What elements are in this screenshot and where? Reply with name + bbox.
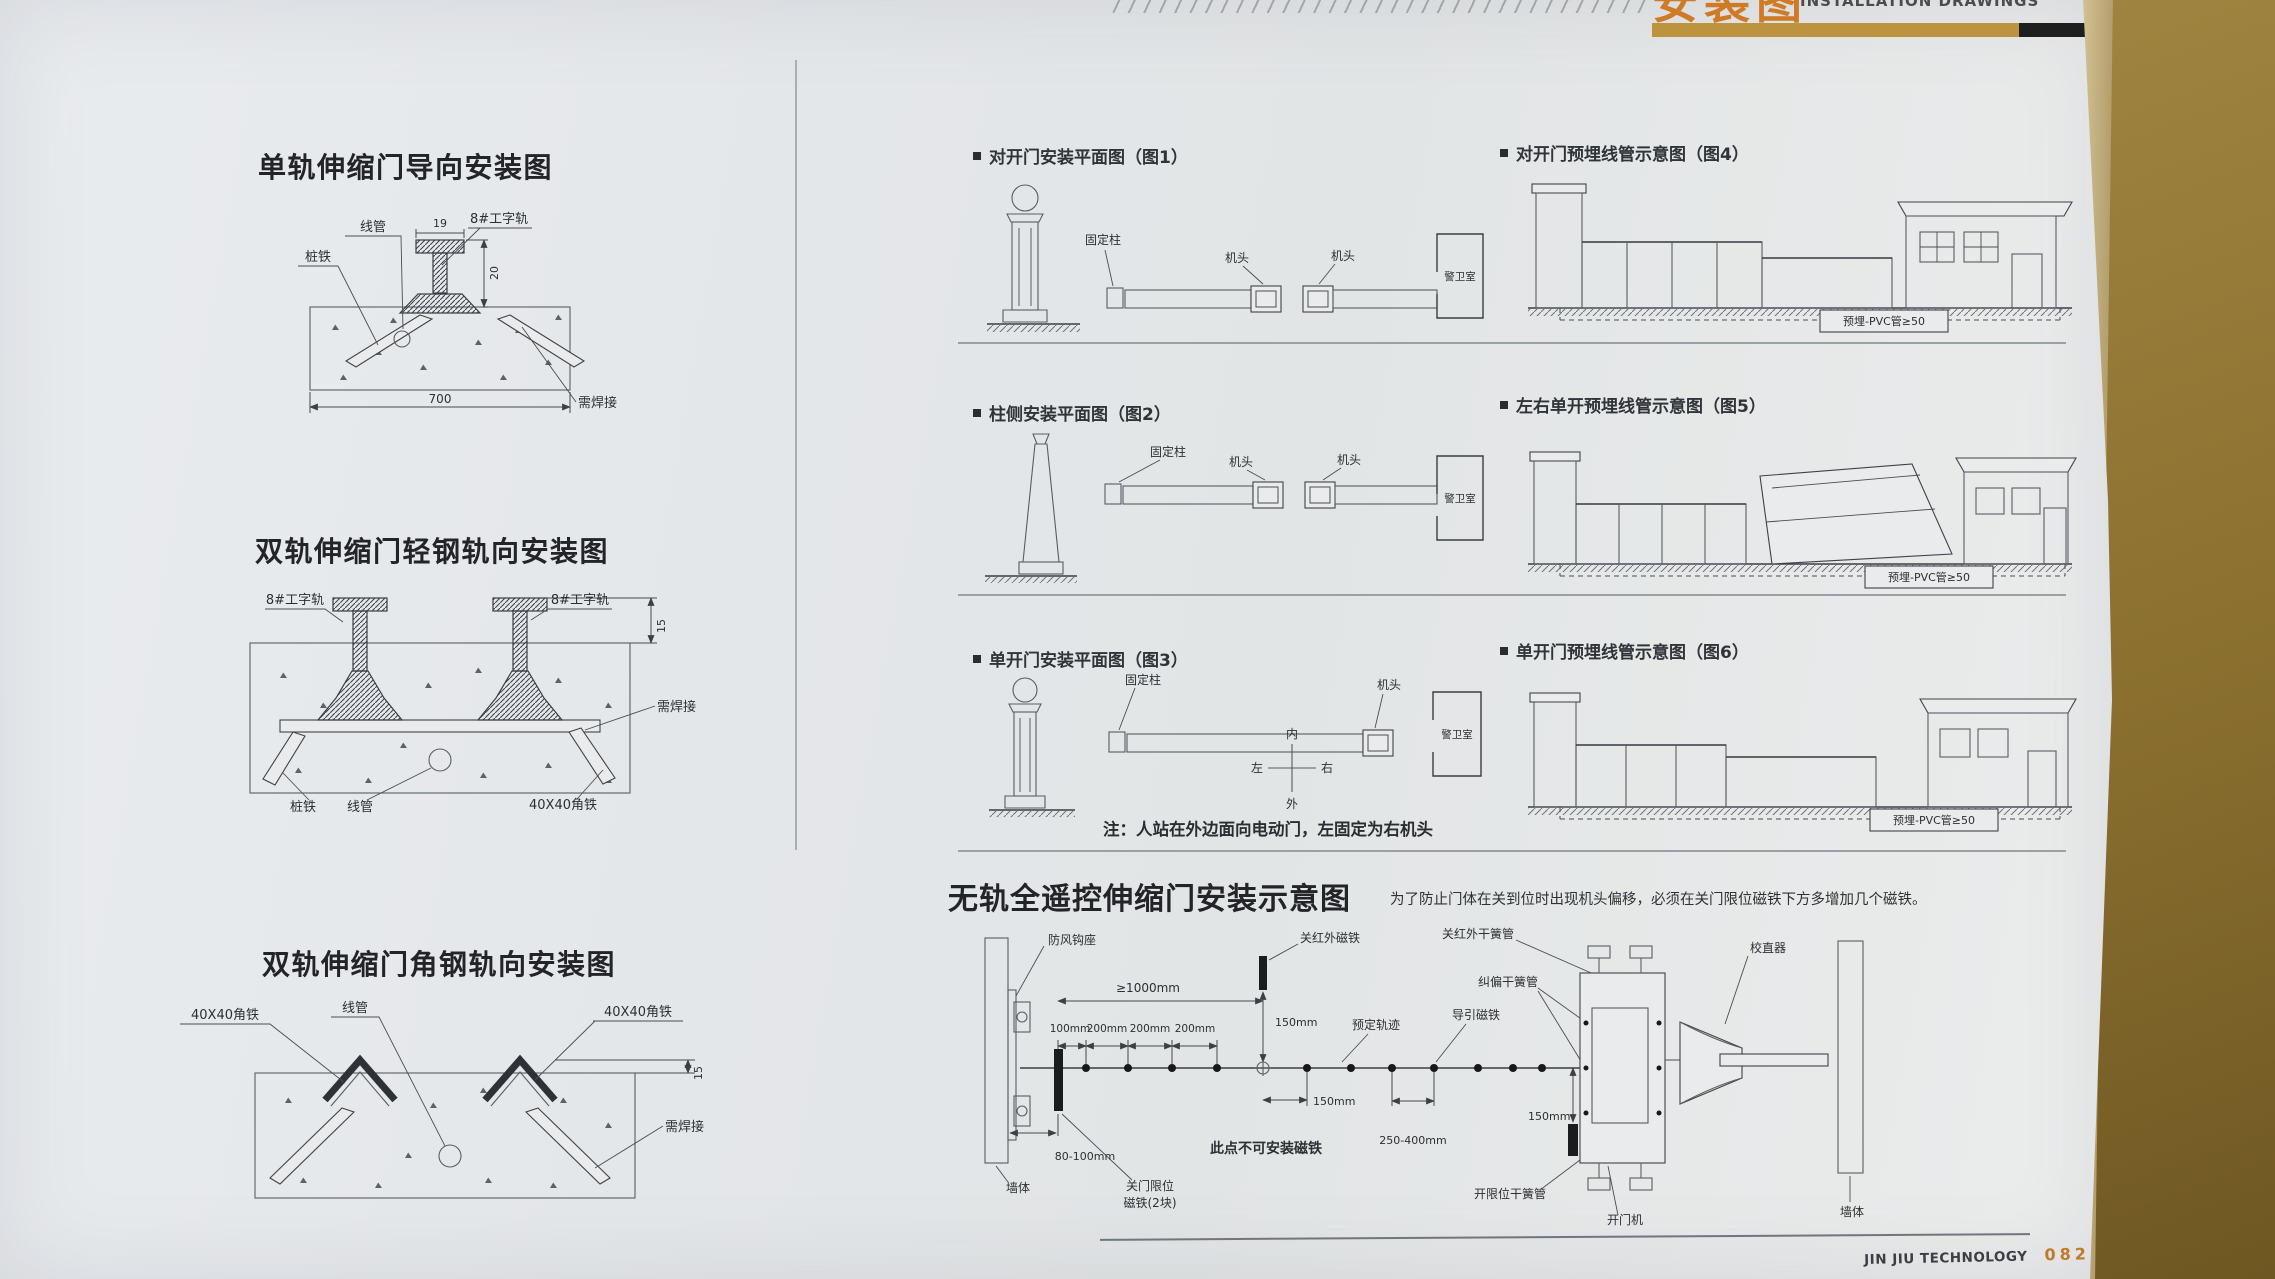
bullet-square bbox=[1500, 149, 1508, 157]
gate-section-left bbox=[1123, 486, 1253, 504]
label-planned-track: 预定轨迹 bbox=[1352, 1017, 1400, 1032]
lattice-fence bbox=[1576, 504, 1746, 564]
fixed-post bbox=[1107, 288, 1123, 308]
brick-pillar bbox=[1530, 452, 1580, 564]
label-wall-right: 墙体 bbox=[1840, 1205, 1864, 1219]
dim-100mm: 100mm bbox=[1050, 1023, 1091, 1035]
label-head-right: 机头 bbox=[1337, 453, 1361, 467]
dim-200mm-1: 200mm bbox=[1087, 1023, 1128, 1035]
dim-20-text: 20 bbox=[488, 266, 501, 280]
dim-1000mm: ≥1000mm bbox=[1116, 981, 1180, 995]
diagram2-title: 双轨伸缩门轻钢轨向安装图 bbox=[255, 530, 609, 570]
label-angle-left: 40X40角铁 bbox=[191, 1008, 259, 1023]
conduit-circle bbox=[439, 1145, 461, 1167]
gate-section-right bbox=[1335, 486, 1437, 504]
figure2-pillar-side-plan: 警卫室 固定柱 机头 机头 bbox=[985, 428, 1485, 588]
diagram3-title: 双轨伸缩门角钢轨向安装图 bbox=[262, 943, 616, 983]
machine-head bbox=[1363, 730, 1393, 756]
machine-head-left bbox=[1251, 286, 1281, 312]
gate-section bbox=[1127, 734, 1363, 752]
label-wall-left: 墙体 bbox=[1006, 1181, 1030, 1195]
label-door-opener: 开门机 bbox=[1607, 1212, 1643, 1227]
label-no-magnet-here: 此点不可安装磁铁 bbox=[1210, 1140, 1322, 1157]
label-close-ir-reed: 关红外干簧管 bbox=[1442, 926, 1514, 941]
gate-end-rod bbox=[1720, 1054, 1828, 1066]
bullet-square bbox=[973, 409, 981, 417]
trackless-section-title: 无轨全遥控伸缩门安装示意图 bbox=[948, 874, 1351, 918]
diagram-double-rail-angle-steel: 15 线管 40X40角铁 40X40角铁 需焊接 bbox=[150, 988, 750, 1218]
compass-outside: 外 bbox=[1286, 797, 1298, 811]
bullet-square bbox=[973, 655, 981, 663]
catalog-page: 安装图 INSTALLATION DRAWINGS 单轨伸缩门导向安装图 bbox=[0, 0, 2112, 1279]
machine-head-right bbox=[1305, 482, 1335, 508]
label-rail-right: 8#工字轨 bbox=[551, 593, 609, 608]
label-pile-iron: 桩铁 bbox=[290, 800, 316, 815]
label-wind-hook: 防风钩座 bbox=[1048, 932, 1096, 947]
left-wall bbox=[985, 938, 1008, 1163]
label-fixed-post: 固定柱 bbox=[1125, 672, 1161, 687]
label-head-left: 机头 bbox=[1229, 455, 1253, 469]
compass-inside: 内 bbox=[1286, 727, 1298, 741]
masonry-pillar bbox=[989, 678, 1075, 817]
closed-gate-canopy bbox=[1760, 464, 1952, 564]
caption-fig2: 柱侧安装平面图（图2） bbox=[973, 400, 1171, 425]
label-rail: 8#工字轨 bbox=[470, 212, 528, 227]
label-conduit: 线管 bbox=[342, 1001, 368, 1016]
conduit-circle bbox=[429, 749, 451, 771]
door-opener-machine bbox=[1580, 946, 1665, 1190]
guard-house bbox=[1956, 458, 2076, 564]
angle-iron-left bbox=[325, 1060, 395, 1106]
gate-section-left bbox=[1125, 290, 1251, 308]
footer-rule bbox=[1100, 1233, 2030, 1241]
label-straightener: 校直器 bbox=[1750, 940, 1786, 955]
spacing-dimensions: 100mm 200mm 200mm 200mm bbox=[1050, 1023, 1217, 1064]
bullet-square bbox=[1500, 401, 1508, 409]
label-head-left: 机头 bbox=[1225, 251, 1249, 265]
footer-brand: JIN JIU TECHNOLOGY bbox=[1864, 1249, 2028, 1268]
label-correction-reed: 纠偏干簧管 bbox=[1478, 974, 1538, 989]
dim-15-text: 15 bbox=[692, 1066, 705, 1080]
compass-left: 左 bbox=[1251, 760, 1263, 775]
compass-right: 右 bbox=[1321, 760, 1333, 775]
close-limit-magnet bbox=[1054, 1049, 1063, 1111]
label-guard-room: 警卫室 bbox=[1444, 492, 1476, 505]
wind-hook-seat bbox=[1008, 990, 1030, 1140]
orientation-compass: 内 外 左 右 bbox=[1251, 727, 1333, 811]
footer: JIN JIU TECHNOLOGY 082 bbox=[1545, 1244, 2090, 1274]
dim-150mm-vertical: 150mm bbox=[1275, 1016, 1317, 1029]
header-gold-bar bbox=[1652, 23, 2085, 37]
label-limit-magnet-line1: 关门限位 bbox=[1126, 1178, 1174, 1193]
label-weld: 需焊接 bbox=[578, 395, 617, 411]
brick-pillar bbox=[1532, 184, 1586, 308]
right-wall bbox=[1838, 941, 1863, 1173]
dimension-20: 20 bbox=[466, 240, 501, 307]
label-angle-right: 40X40角铁 bbox=[604, 1005, 672, 1020]
concrete-block bbox=[310, 307, 570, 390]
steel-plate bbox=[280, 720, 600, 732]
i-beam-rail-right bbox=[478, 598, 562, 720]
center-point-crosshair bbox=[1255, 1060, 1271, 1076]
label-open-limit-reed: 开限位干簧管 bbox=[1474, 1186, 1546, 1201]
figure4-double-gate-conduit-elevation: 预埋-PVC管≥50 bbox=[1520, 158, 2080, 348]
diagram-single-rail-guide: 700 19 20 线管 桩铁 8#工字轨 需焊接 bbox=[270, 195, 670, 435]
figure1-double-gate-plan: 警卫室 固定柱 机头 机头 bbox=[985, 172, 1485, 342]
bullet-square bbox=[973, 152, 981, 160]
dim-150mm-right: 150mm bbox=[1528, 1110, 1570, 1123]
diagram1-title: 单轨伸缩门导向安装图 bbox=[258, 146, 553, 186]
label-conduit: 线管 bbox=[347, 800, 373, 815]
label-conduit: 线管 bbox=[360, 220, 386, 235]
footer-page-number: 082 bbox=[2044, 1244, 2090, 1264]
header-gold-bar-black-end bbox=[2019, 23, 2085, 37]
page-header-title-en: INSTALLATION DRAWINGS bbox=[1800, 0, 2039, 10]
guard-house bbox=[1898, 202, 2072, 308]
caption-fig1: 对开门安装平面图（图1） bbox=[973, 143, 1188, 168]
gate-section-right bbox=[1333, 290, 1437, 308]
figure6-single-gate-conduit-elevation: 预埋-PVC管≥50 bbox=[1520, 655, 2080, 840]
dimension-19: 19 bbox=[416, 217, 464, 238]
label-close-ir-magnet: 关红外磁铁 bbox=[1300, 930, 1360, 945]
i-beam-rail-left bbox=[318, 598, 402, 720]
label-guard-room: 警卫室 bbox=[1441, 728, 1473, 741]
struts bbox=[270, 1108, 610, 1184]
dim-19-text: 19 bbox=[433, 217, 447, 230]
label-pvc: 预埋-PVC管≥50 bbox=[1893, 813, 1975, 827]
diagram-double-rail-light-steel: 15 8#工字轨 8#工字轨 需焊接 桩铁 线管 40X40角铁 bbox=[225, 578, 705, 818]
pile-iron-struts bbox=[346, 315, 584, 367]
label-pile-iron: 桩铁 bbox=[305, 250, 331, 265]
label-limit-magnet-line2: 磁铁(2块) bbox=[1124, 1195, 1177, 1210]
label-guard-room: 警卫室 bbox=[1444, 270, 1476, 283]
label-head-right: 机头 bbox=[1331, 249, 1355, 263]
dim-250-400mm: 250-400mm bbox=[1379, 1134, 1446, 1147]
caption-fig1-text: 对开门安装平面图（图1） bbox=[989, 143, 1188, 168]
dimension-15: 15 bbox=[555, 1060, 705, 1080]
row-separator-3 bbox=[958, 850, 2066, 852]
guard-house bbox=[1920, 699, 2076, 807]
dim-80-100mm: 80-100mm bbox=[1055, 1150, 1115, 1163]
concrete-block bbox=[255, 1073, 635, 1198]
fixed-post bbox=[1109, 732, 1125, 752]
label-guide-magnet: 导引磁铁 bbox=[1452, 1007, 1500, 1022]
label-rail-left: 8#工字轨 bbox=[266, 593, 324, 608]
dim-200mm-3: 200mm bbox=[1175, 1023, 1216, 1035]
angle-iron-struts bbox=[263, 728, 615, 785]
i-beam-rail-section bbox=[400, 240, 480, 313]
figure3-note: 注：人站在外边面向电动门，左固定为右机头 bbox=[1103, 816, 1433, 840]
fixed-post bbox=[1105, 484, 1121, 504]
label-head: 机头 bbox=[1377, 678, 1401, 692]
header-hatch-pattern bbox=[1105, 0, 1653, 13]
trackless-gate-schematic: 墙体 防风钩座 bbox=[980, 928, 1880, 1228]
label-pvc: 预埋-PVC管≥50 bbox=[1843, 314, 1925, 328]
brick-pillar bbox=[1530, 693, 1580, 807]
column-divider-line bbox=[795, 60, 797, 850]
label-fixed-post: 固定柱 bbox=[1085, 232, 1121, 247]
label-angle-iron: 40X40角铁 bbox=[529, 798, 597, 813]
figure3-single-gate-plan: 警卫室 固定柱 机头 内 外 左 右 bbox=[985, 668, 1505, 818]
label-weld: 需焊接 bbox=[657, 699, 696, 715]
angle-iron-right bbox=[485, 1060, 555, 1106]
machine-head-left bbox=[1253, 482, 1283, 508]
dimension-700: 700 bbox=[310, 392, 570, 413]
caption-fig2-text: 柱侧安装平面图（图2） bbox=[989, 400, 1171, 425]
figure5-single-gate-conduit-elevation: 预埋-PVC管≥50 bbox=[1520, 412, 2080, 597]
dim-15-text: 15 bbox=[655, 619, 668, 633]
dim-150mm-horizontal: 150mm bbox=[1313, 1095, 1355, 1108]
dim-700-text: 700 bbox=[429, 392, 452, 406]
trackless-section-note: 为了防止门体在关到位时出现机头偏移，必须在关门限位磁铁下方多增加几个磁铁。 bbox=[1390, 888, 1927, 909]
lattice-fence bbox=[1582, 242, 1762, 308]
retractable-gate bbox=[1762, 258, 1892, 308]
dim-200mm-2: 200mm bbox=[1130, 1023, 1171, 1035]
lattice-fence bbox=[1576, 745, 1726, 807]
close-ir-magnet bbox=[1259, 956, 1267, 990]
bullet-square bbox=[1500, 647, 1508, 655]
label-weld: 需焊接 bbox=[665, 1119, 704, 1135]
photo-of-catalog-page: 安装图 INSTALLATION DRAWINGS 单轨伸缩门导向安装图 bbox=[0, 0, 2275, 1279]
label-pvc: 预埋-PVC管≥50 bbox=[1888, 570, 1970, 584]
obelisk-pillar bbox=[985, 434, 1077, 583]
retractable-gate bbox=[1726, 757, 1876, 807]
masonry-pillar bbox=[987, 185, 1080, 332]
label-fixed-post: 固定柱 bbox=[1150, 444, 1186, 459]
open-limit-magnet bbox=[1568, 1124, 1578, 1156]
machine-head-right bbox=[1303, 286, 1333, 312]
